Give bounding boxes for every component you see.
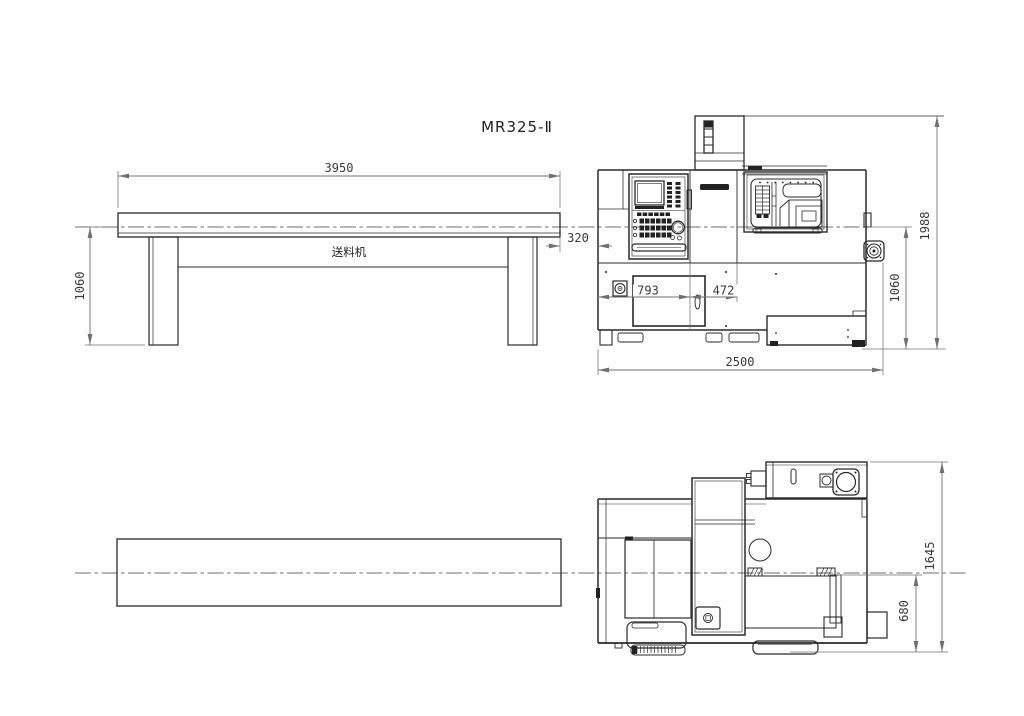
machine-plan-view (596, 462, 887, 655)
dim-front-depth: 680 (838, 575, 922, 652)
plan-view: 1645 680 (75, 462, 968, 655)
brand-logo (700, 184, 729, 190)
pump-motor (864, 241, 884, 261)
dim-gap: 320 (546, 231, 612, 252)
dim-feeder-length-label: 3950 (325, 161, 354, 175)
chip-bin-grate (632, 646, 676, 654)
dim-feeder-height: 1060 (73, 227, 145, 345)
clamp-block-left (748, 568, 762, 576)
technical-drawing-canvas: MR325-Ⅱ 送料机 (0, 0, 1024, 716)
dim-spindle-height-label: 1060 (888, 274, 902, 303)
machine-body-outline (598, 166, 866, 330)
feeder-label: 送料机 (332, 245, 367, 259)
feeder-leg-left (149, 237, 178, 345)
crt-screen (635, 181, 664, 205)
rear-handle-slot (791, 469, 796, 484)
jog-dial (672, 221, 685, 234)
dim-overall-depth: 1645 (790, 462, 948, 652)
foot-left (600, 330, 612, 345)
coolant-tank-box (767, 316, 866, 345)
screen-label-strip (635, 206, 664, 209)
drawing-sheet: MR325-Ⅱ 送料机 (0, 0, 1024, 716)
machine-front-view (598, 116, 884, 347)
dim-feeder-height-label: 1060 (73, 272, 87, 301)
feeder-tube (118, 213, 560, 237)
headstock-box (625, 540, 691, 618)
vent-strip (748, 166, 762, 170)
dim-overall-height-label: 1988 (918, 212, 932, 241)
guard-door-column (692, 478, 755, 635)
dim-front-depth-label: 680 (897, 600, 911, 622)
dim-panel-right-label: 472 (713, 284, 735, 298)
dim-overall-length: 2500 (598, 263, 883, 375)
drawing-title: MR325-Ⅱ (481, 118, 553, 136)
side-tab (864, 213, 871, 227)
dim-spindle-height: 1060 (862, 227, 946, 349)
front-view: 送料机 (73, 116, 946, 375)
window-bolt-dots (759, 182, 814, 184)
dim-gap-label: 320 (567, 231, 589, 245)
feeder-plan-outline (117, 539, 561, 606)
dim-overall-depth-label: 1645 (923, 542, 937, 571)
softkey-column (667, 182, 681, 208)
column-latch-box (696, 607, 720, 629)
chip-conveyor-tower (695, 116, 762, 170)
machining-area-plan (745, 499, 887, 638)
spindle-cover (783, 184, 821, 197)
viewing-window (744, 172, 827, 233)
bar-feeder-side-view: 送料机 (118, 213, 560, 345)
dim-overall-length-label: 2500 (726, 355, 755, 369)
spindle-circle (749, 539, 771, 561)
cnc-control-panel (629, 174, 692, 259)
rear-connector-box (751, 471, 766, 486)
keypad (632, 211, 685, 241)
turret-detail (756, 182, 823, 227)
rear-units-box (747, 462, 868, 498)
chip-bin (627, 622, 686, 655)
right-protruding-box (867, 612, 887, 638)
dim-panel-left-label: 793 (637, 284, 659, 298)
dim-feeder-length: 3950 (118, 161, 560, 208)
hydraulic-motor-flange (833, 469, 859, 495)
left-edge-tick (596, 588, 600, 598)
